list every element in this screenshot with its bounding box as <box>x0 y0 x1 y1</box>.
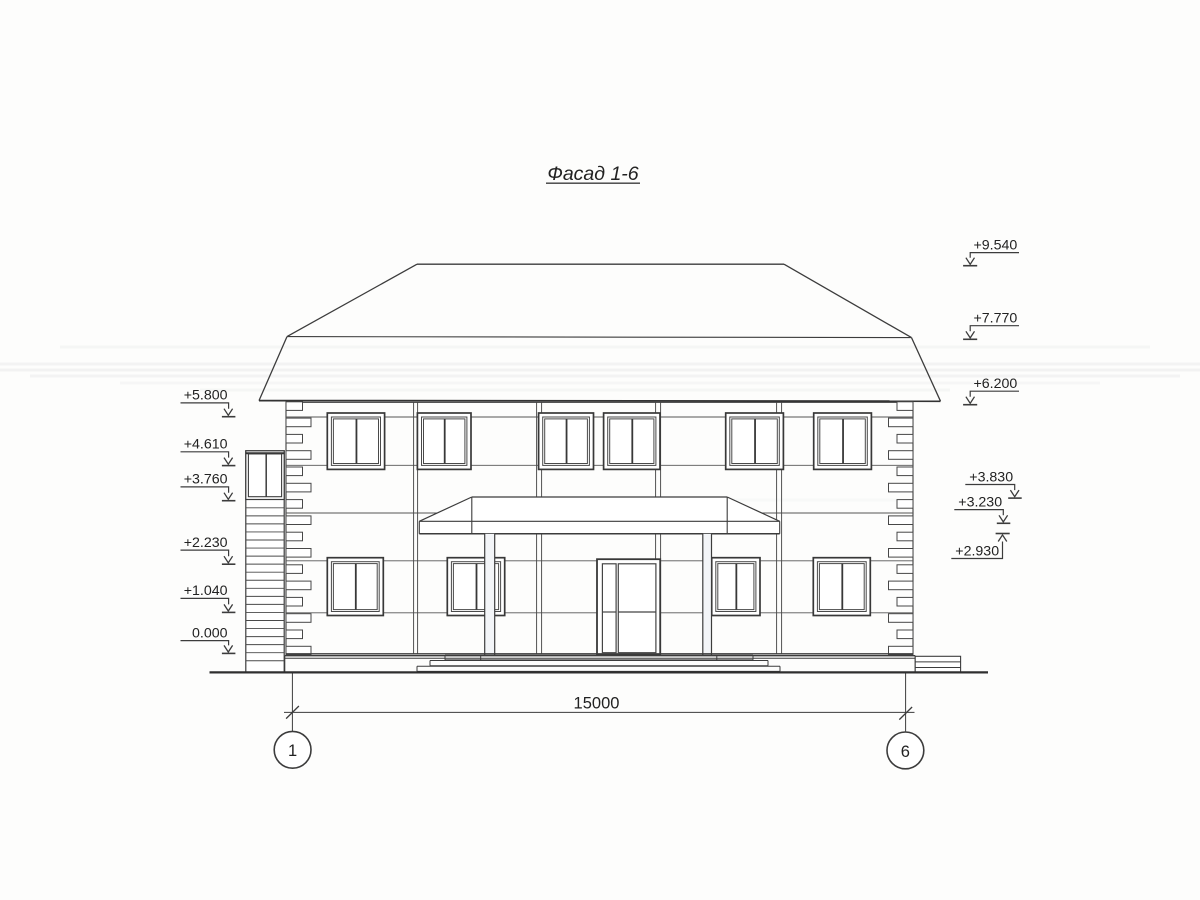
svg-text:+3.830: +3.830 <box>969 469 1013 485</box>
svg-text:+4.610: +4.610 <box>184 437 228 453</box>
svg-text:0.000: 0.000 <box>192 625 228 641</box>
svg-text:+5.800: +5.800 <box>184 388 228 404</box>
svg-text:+6.200: +6.200 <box>974 376 1018 392</box>
svg-text:+3.760: +3.760 <box>184 472 228 488</box>
svg-text:+7.770: +7.770 <box>974 311 1018 327</box>
svg-text:+2.930: +2.930 <box>955 543 999 559</box>
svg-text:Фасад 1-6: Фасад 1-6 <box>547 163 638 185</box>
svg-text:+1.040: +1.040 <box>184 583 228 599</box>
svg-text:+3.230: +3.230 <box>958 494 1002 510</box>
svg-text:1: 1 <box>288 742 297 760</box>
svg-text:+9.540: +9.540 <box>974 237 1018 253</box>
svg-text:+2.230: +2.230 <box>184 535 228 551</box>
svg-text:15000: 15000 <box>574 695 620 713</box>
svg-text:6: 6 <box>901 743 910 761</box>
